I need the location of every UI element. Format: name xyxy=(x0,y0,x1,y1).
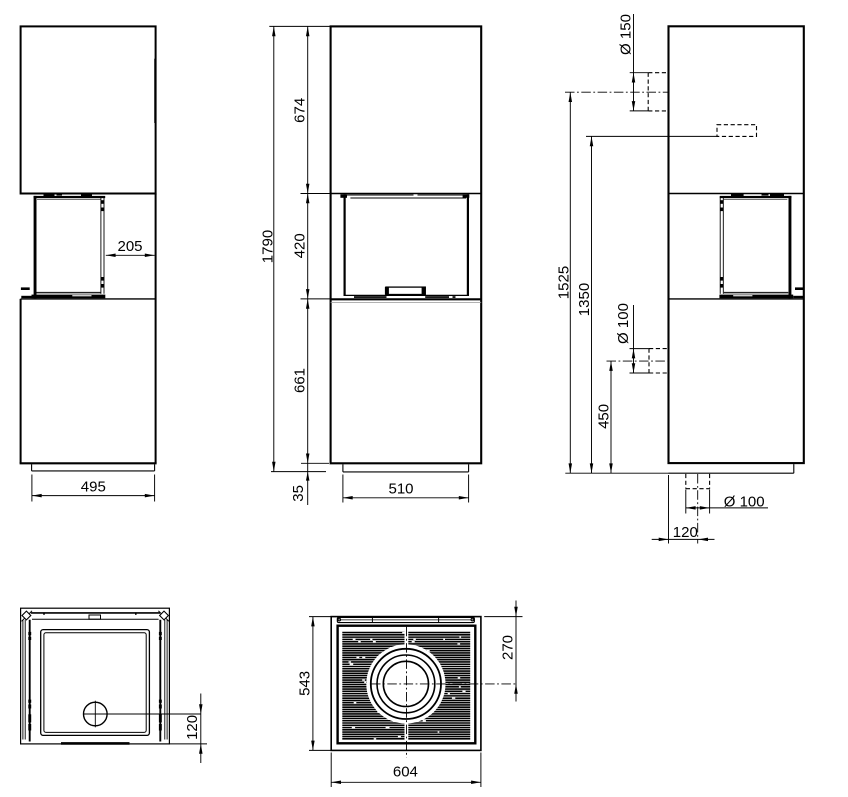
svg-text:Ø 100: Ø 100 xyxy=(615,303,632,344)
svg-text:120: 120 xyxy=(184,715,201,740)
svg-text:661: 661 xyxy=(292,368,309,393)
svg-text:35: 35 xyxy=(290,485,307,502)
svg-text:205: 205 xyxy=(117,238,142,255)
svg-text:Ø 100: Ø 100 xyxy=(724,493,765,510)
svg-text:270: 270 xyxy=(499,635,516,660)
svg-text:1790: 1790 xyxy=(259,230,276,263)
svg-text:1525: 1525 xyxy=(556,266,573,299)
svg-text:510: 510 xyxy=(388,481,413,498)
svg-text:Ø 150: Ø 150 xyxy=(618,14,635,55)
svg-text:450: 450 xyxy=(595,404,612,429)
svg-text:674: 674 xyxy=(292,98,309,123)
svg-text:420: 420 xyxy=(292,233,309,258)
svg-text:543: 543 xyxy=(297,671,314,696)
svg-text:495: 495 xyxy=(81,479,106,496)
svg-text:604: 604 xyxy=(393,764,418,781)
svg-text:120: 120 xyxy=(673,524,698,541)
svg-text:1350: 1350 xyxy=(576,283,593,316)
